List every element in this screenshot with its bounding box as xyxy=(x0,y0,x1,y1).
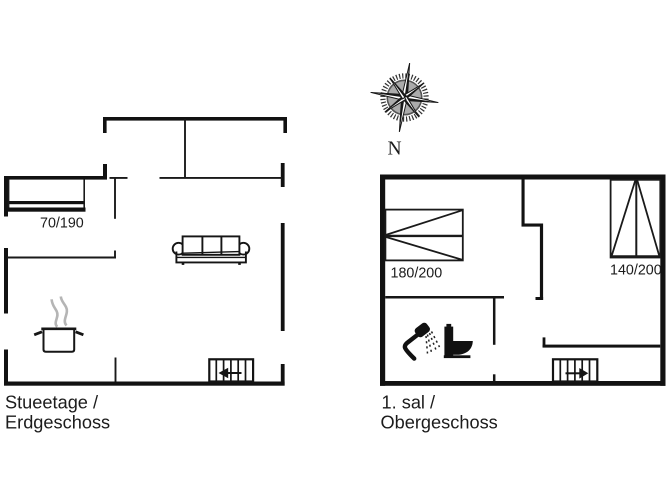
svg-text:Obergeschoss: Obergeschoss xyxy=(381,413,498,433)
svg-text:Stueetage /: Stueetage / xyxy=(5,393,99,413)
svg-text:Erdgeschoss: Erdgeschoss xyxy=(5,413,110,433)
svg-text:140/200: 140/200 xyxy=(610,262,662,278)
svg-text:1. sal /: 1. sal / xyxy=(382,393,437,413)
svg-text:N: N xyxy=(388,138,402,159)
svg-text:70/190: 70/190 xyxy=(40,216,84,232)
svg-text:180/200: 180/200 xyxy=(391,266,443,282)
